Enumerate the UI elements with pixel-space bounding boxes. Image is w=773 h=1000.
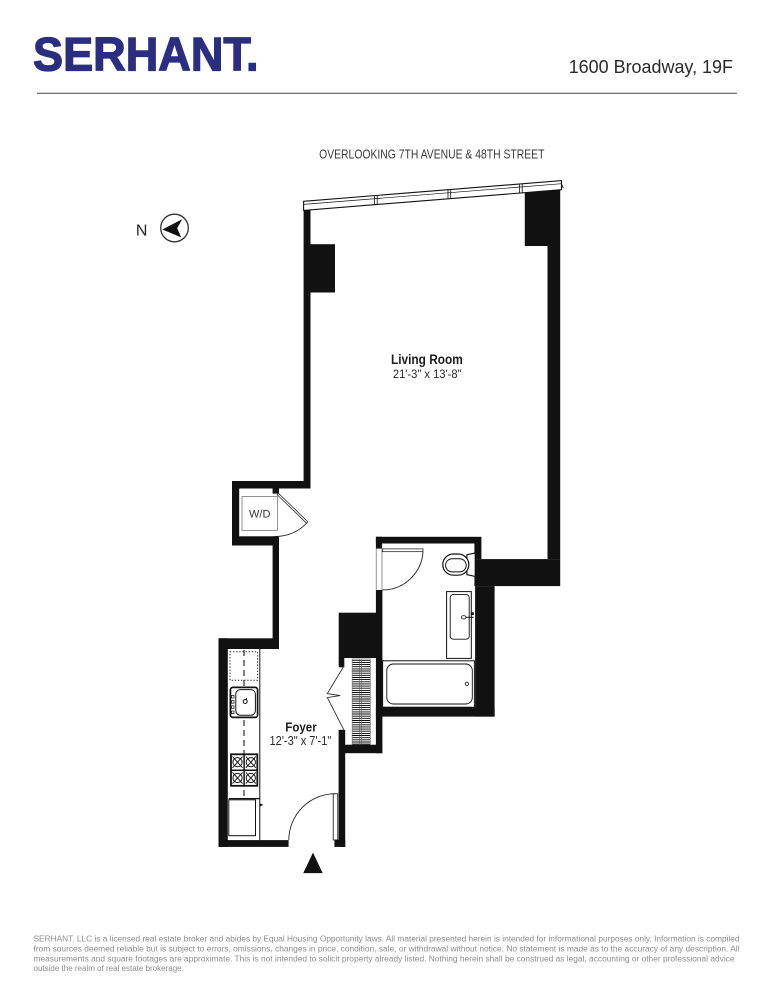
svg-text:N: N [136,222,148,239]
svg-text:21'-3" x 13'-8": 21'-3" x 13'-8" [393,367,462,381]
svg-text:W/D: W/D [249,509,270,521]
svg-text:Foyer: Foyer [285,720,316,734]
svg-text:1600 Broadway, 19F: 1600 Broadway, 19F [569,56,733,77]
svg-text:outside the realm of real esta: outside the realm of real estate brokera… [34,964,184,973]
svg-text:12'-3" x 7'-1": 12'-3" x 7'-1" [270,733,332,748]
svg-text:Living Room: Living Room [391,352,463,367]
svg-text:from sources deemed reliable: from sources deemed reliable but is subj… [34,944,740,953]
svg-text:SERHANT. LLC is a licensed rea: SERHANT. LLC is a licensed real estate b… [34,935,740,944]
svg-text:measurements and square footag: measurements and square footages are app… [34,954,736,963]
svg-text:SERHANT.: SERHANT. [33,28,259,81]
svg-text:OVERLOOKING 7TH AVENUE & 48TH: OVERLOOKING 7TH AVENUE & 48TH STREET [319,148,545,162]
